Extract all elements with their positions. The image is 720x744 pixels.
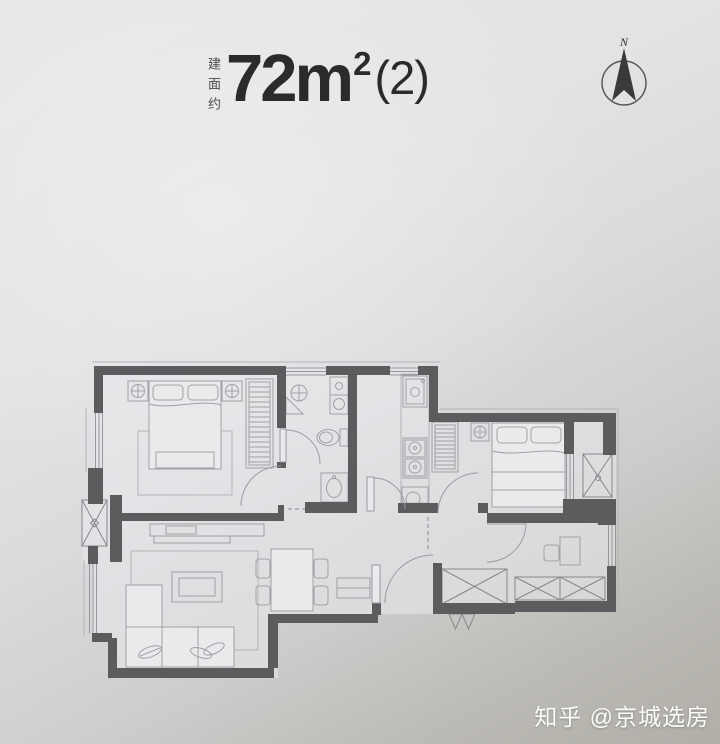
bed-double [492, 423, 565, 507]
dining-table [271, 549, 313, 611]
watermark: 知乎 @京城选房 [534, 698, 710, 732]
entry-door-mark [449, 614, 475, 629]
brochure-page: 建面约 72m2(2) N [0, 0, 720, 744]
bed-double [149, 381, 221, 469]
floor-plan [0, 0, 720, 744]
